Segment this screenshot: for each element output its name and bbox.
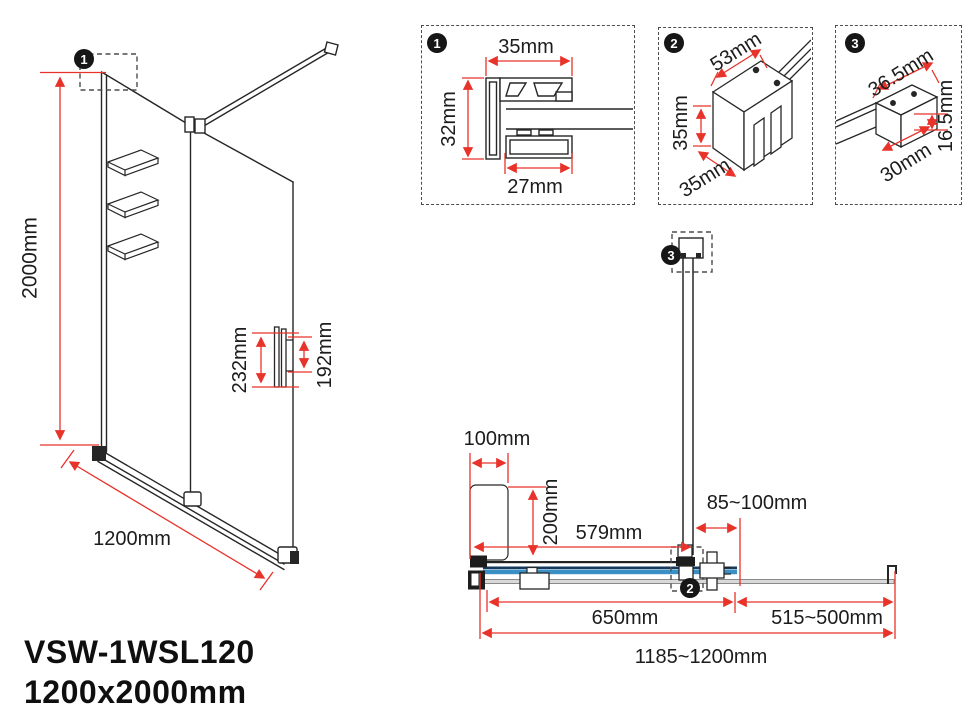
shelves [108, 150, 158, 260]
plan-left-profile-slot [472, 574, 479, 586]
bar-to-edge-label: 85~100mm [707, 493, 808, 513]
plan-support-bar [683, 258, 693, 555]
detail-2-marker: 2 [664, 33, 684, 53]
plan-view-drawing [430, 215, 970, 695]
shelf [108, 192, 158, 218]
handle-outer-dimension-label: 232mm [230, 327, 250, 394]
detail-1-top-dim: 35mm [498, 37, 554, 57]
front-view-dimensions [40, 73, 312, 591]
detail-box-3: 3 36.5mm 16.5mm 30mm [835, 25, 962, 205]
bar-position-label: 579mm [576, 523, 643, 543]
fixed-panel-width-label: 650mm [592, 608, 659, 628]
detail-1-left-dim: 32mm [439, 91, 459, 147]
wall-profile-section [486, 78, 633, 159]
front-view-marker-1: 1 [74, 49, 94, 69]
second-panel-width-label: 515~500mm [771, 608, 883, 628]
plan-bar-clamp-body [676, 557, 695, 566]
detail-1-marker: 1 [427, 33, 447, 53]
detail-1-bottom-dim: 27mm [507, 177, 563, 197]
detail-3-marker: 3 [845, 33, 865, 53]
bar-glass-clamp-2 [195, 119, 205, 133]
detail-box-2: 2 53mm 35mm 35mm [658, 27, 813, 205]
bracket-foot-left [681, 253, 686, 258]
width-dimension-label: 1200mm [93, 529, 171, 549]
shelf [108, 234, 158, 260]
model-number: VSW-1WSL120 [24, 634, 255, 671]
fixed-zone-rect [470, 485, 508, 560]
shelf [108, 150, 158, 176]
divider-bottom-clamp [184, 492, 201, 506]
total-width-label: 1185~1200mm [635, 647, 768, 667]
support-bar [202, 47, 331, 127]
plan-marker-2: 2 [680, 578, 700, 598]
fixed-zone-width-label: 100mm [464, 429, 531, 449]
detail-3-right-dim: 16.5mm [936, 80, 956, 152]
plan-mid-clamp [520, 573, 549, 589]
towel-handle [275, 327, 293, 387]
right-foot-block [290, 551, 299, 564]
bracket-foot-right [696, 253, 701, 258]
technical-drawing-canvas: 1 2000mm 232mm 192mm 1200mm VSW-1WSL120 … [0, 0, 970, 725]
detail-2-left-dim: 35mm [671, 95, 691, 151]
model-size: 1200x2000mm [24, 674, 247, 711]
detail-box-1: 1 35mm 32mm 27mm [421, 25, 635, 205]
bar-glass-clamp [185, 117, 194, 132]
left-base-block [92, 446, 106, 461]
handle-inner-dimension-label: 192mm [315, 322, 335, 389]
height-dimension-label: 2000mm [20, 217, 41, 299]
plan-marker-3: 3 [661, 245, 681, 265]
plan-left-profile-top [470, 556, 487, 568]
support-bar-wall-end [325, 42, 339, 55]
front-view-drawing [0, 0, 420, 725]
plan-pivot-fitting-flange [700, 563, 724, 578]
fixed-zone-depth-label: 200mm [541, 479, 561, 546]
